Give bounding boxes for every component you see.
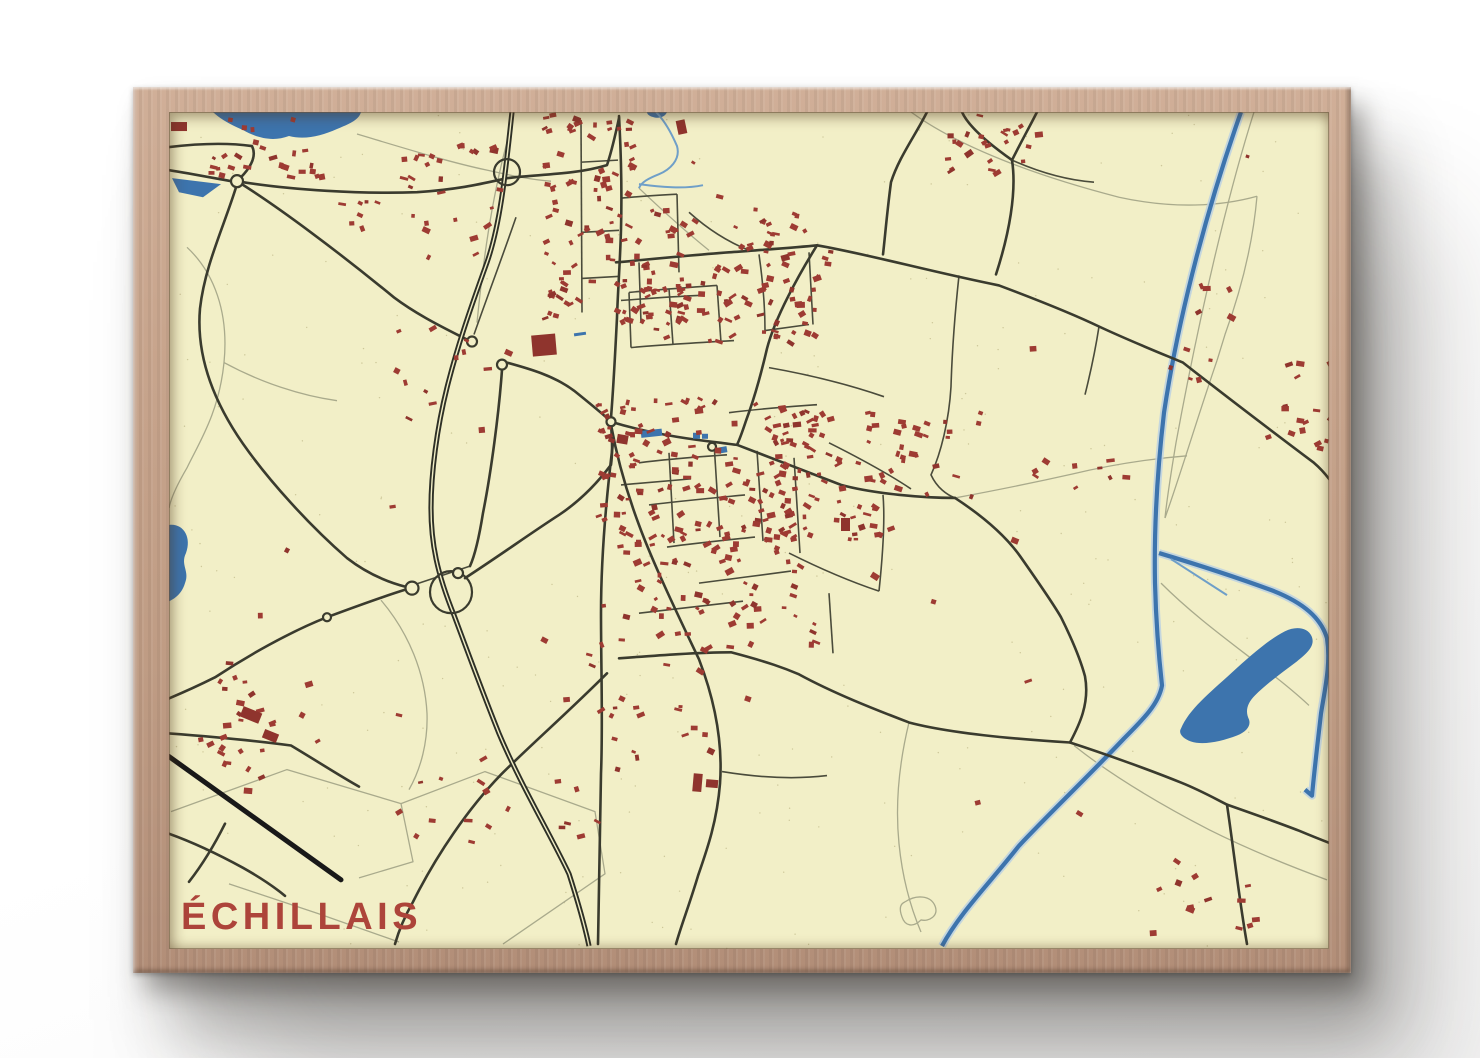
map-graphic bbox=[169, 112, 1329, 949]
poster-frame: ÉCHILLAIS bbox=[133, 87, 1351, 973]
wall-background: ÉCHILLAIS bbox=[0, 0, 1480, 1058]
map-paper: ÉCHILLAIS bbox=[169, 112, 1329, 949]
poster-title: ÉCHILLAIS bbox=[181, 896, 422, 939]
